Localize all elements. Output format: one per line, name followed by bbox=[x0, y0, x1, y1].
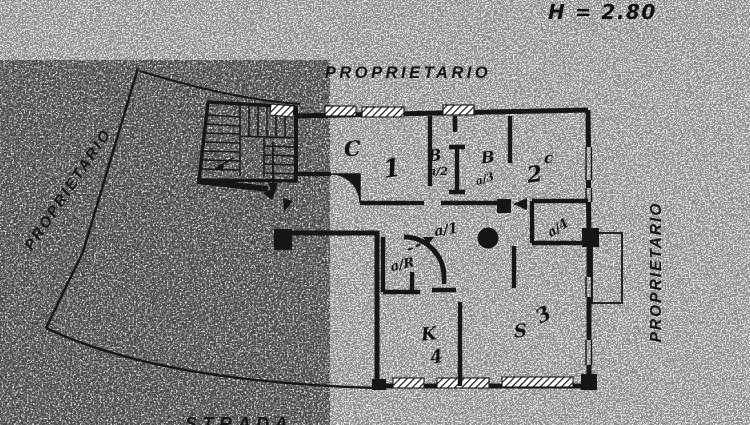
pillar-right-mid bbox=[582, 228, 599, 247]
floorplan-drawing: C 1 B a/2 B a/3 2 c a/1 a/4 a/R K 4 S 3 … bbox=[0, 0, 750, 425]
window-bottom-3 bbox=[502, 377, 573, 387]
column-dot-symbol bbox=[478, 228, 499, 249]
bath2-type-label: B bbox=[479, 147, 495, 167]
scanned-floorplan-page: C 1 B a/2 B a/3 2 c a/1 a/4 a/R K 4 S 3 … bbox=[0, 0, 750, 425]
pillar-corridor bbox=[497, 199, 511, 213]
street-label: STRADA bbox=[185, 414, 293, 425]
room1-type-label: C bbox=[343, 135, 362, 161]
pillar-bottom-right bbox=[581, 374, 597, 390]
pillar-entrance bbox=[274, 229, 292, 250]
kitchen-type-label: K bbox=[419, 323, 439, 345]
window-bottom-1 bbox=[393, 378, 424, 388]
window-top-1 bbox=[325, 106, 356, 116]
bath1-code-label: a/2 bbox=[429, 165, 448, 178]
stair-window-hatch bbox=[270, 104, 294, 117]
pillar-bottom-left bbox=[372, 379, 386, 390]
room2-type-label: c bbox=[544, 149, 553, 167]
window-top-2 bbox=[362, 107, 404, 117]
height-note: H = 2.80 bbox=[548, 0, 657, 24]
living-type-label: S bbox=[513, 320, 528, 342]
bath1-type-label: B bbox=[426, 145, 442, 165]
owner-label-right: PROPRIETARIO bbox=[648, 202, 665, 343]
window-top-3 bbox=[443, 105, 474, 115]
window-bottom-2 bbox=[437, 378, 489, 388]
owner-label-top: PROPRIETARIO bbox=[325, 64, 491, 82]
